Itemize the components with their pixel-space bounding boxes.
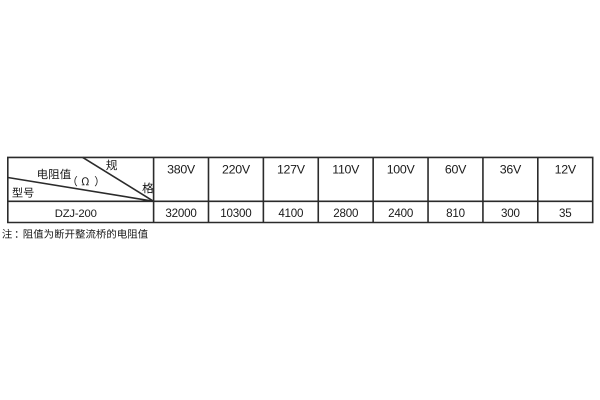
svg-text:100V: 100V xyxy=(387,163,416,177)
svg-text:12V: 12V xyxy=(555,163,577,177)
svg-text:35: 35 xyxy=(559,207,572,220)
svg-text:127V: 127V xyxy=(277,163,306,177)
svg-text:810: 810 xyxy=(446,207,465,220)
svg-text:4100: 4100 xyxy=(278,207,303,220)
svg-text:DZJ-200: DZJ-200 xyxy=(55,208,97,220)
svg-text:380V: 380V xyxy=(167,163,196,177)
svg-text:2800: 2800 xyxy=(333,207,358,220)
svg-text:2400: 2400 xyxy=(388,207,413,220)
svg-text:36V: 36V xyxy=(500,163,522,177)
svg-text:10300: 10300 xyxy=(220,207,251,220)
svg-text:220V: 220V xyxy=(222,163,251,177)
svg-text:300: 300 xyxy=(501,207,520,220)
svg-text:60V: 60V xyxy=(445,163,467,177)
svg-text:110V: 110V xyxy=(332,163,360,177)
svg-text:32000: 32000 xyxy=(165,207,196,220)
